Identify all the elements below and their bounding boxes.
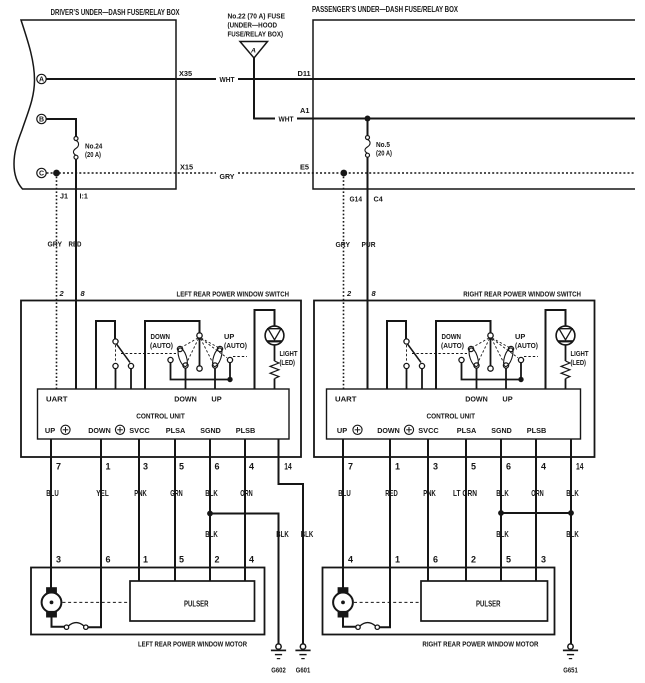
- svg-text:(20 A): (20 A): [85, 150, 101, 159]
- svg-text:WHT: WHT: [279, 114, 294, 123]
- svg-text:14: 14: [284, 462, 292, 472]
- svg-text:GRY: GRY: [48, 240, 63, 249]
- svg-text:UP: UP: [515, 332, 525, 341]
- svg-text:BLU: BLU: [46, 489, 59, 498]
- svg-text:WHT: WHT: [220, 75, 235, 84]
- svg-text:5: 5: [179, 462, 184, 472]
- svg-text:G651: G651: [563, 665, 578, 674]
- svg-text:7: 7: [348, 462, 353, 472]
- svg-text:CONTROL UNIT: CONTROL UNIT: [427, 412, 476, 421]
- svg-text:DOWN: DOWN: [465, 395, 488, 404]
- svg-text:2: 2: [59, 289, 65, 298]
- svg-text:GRN: GRN: [170, 489, 183, 498]
- svg-text:B: B: [39, 117, 44, 124]
- svg-text:E5: E5: [300, 163, 309, 172]
- svg-text:BLU: BLU: [338, 489, 351, 498]
- svg-text:PULSER: PULSER: [476, 598, 501, 608]
- svg-text:LEFT REAR POWER WINDOW MOTOR: LEFT REAR POWER WINDOW MOTOR: [138, 639, 248, 648]
- svg-text:5: 5: [506, 554, 511, 564]
- svg-text:RED: RED: [69, 240, 83, 249]
- svg-text:1: 1: [395, 554, 400, 564]
- svg-text:4: 4: [249, 462, 254, 472]
- svg-text:14: 14: [576, 462, 584, 472]
- svg-text:SVCC: SVCC: [129, 426, 150, 435]
- svg-text:UP: UP: [224, 332, 234, 341]
- svg-text:6: 6: [506, 462, 511, 472]
- svg-text:BLK: BLK: [566, 530, 579, 539]
- svg-text:UART: UART: [46, 395, 68, 404]
- svg-text:5: 5: [179, 554, 184, 564]
- svg-text:RIGHT REAR POWER WINDOW MOTOR: RIGHT REAR POWER WINDOW MOTOR: [422, 639, 539, 648]
- svg-text:1: 1: [395, 462, 400, 472]
- svg-text:PNK: PNK: [134, 489, 147, 498]
- svg-text:DOWN: DOWN: [174, 395, 197, 404]
- svg-text:PUR: PUR: [362, 240, 377, 249]
- svg-text:(AUTO): (AUTO): [441, 341, 464, 350]
- svg-text:SVCC: SVCC: [418, 426, 439, 435]
- svg-text:BLK: BLK: [496, 530, 509, 539]
- svg-text:4: 4: [249, 554, 254, 564]
- svg-text:7: 7: [56, 462, 61, 472]
- svg-text:2: 2: [215, 554, 220, 564]
- svg-text:BLK: BLK: [205, 530, 218, 539]
- svg-text:3: 3: [433, 462, 438, 472]
- svg-text:G601: G601: [296, 665, 311, 674]
- svg-text:BLK: BLK: [276, 530, 289, 539]
- svg-text:BLK: BLK: [205, 489, 218, 498]
- svg-text:DRIVER’S UNDER—DASH FUSE/RELAY: DRIVER’S UNDER—DASH FUSE/RELAY BOX: [51, 8, 180, 17]
- svg-text:5: 5: [471, 462, 476, 472]
- svg-text:4: 4: [348, 554, 353, 564]
- svg-text:BLK: BLK: [301, 530, 314, 539]
- svg-text:RED: RED: [385, 489, 398, 498]
- svg-text:RIGHT REAR POWER WINDOW SWITCH: RIGHT REAR POWER WINDOW SWITCH: [463, 290, 581, 299]
- svg-text:PASSENGER’S UNDER—DASH FUSE/RE: PASSENGER’S UNDER—DASH FUSE/RELAY BOX: [312, 5, 459, 14]
- svg-text:PLSA: PLSA: [457, 426, 477, 435]
- svg-text:SGND: SGND: [491, 426, 512, 435]
- svg-text:3: 3: [541, 554, 546, 564]
- svg-text:1: 1: [143, 554, 148, 564]
- svg-text:2: 2: [471, 554, 476, 564]
- svg-text:1: 1: [106, 462, 111, 472]
- svg-text:YEL: YEL: [96, 489, 109, 498]
- svg-text:4: 4: [541, 462, 546, 472]
- svg-text:SGND: SGND: [200, 426, 221, 435]
- svg-text:A: A: [250, 48, 256, 55]
- svg-text:(AUTO): (AUTO): [150, 341, 173, 350]
- svg-text:C4: C4: [374, 195, 383, 204]
- svg-text:GRY: GRY: [336, 240, 351, 249]
- svg-text:X15: X15: [180, 163, 193, 172]
- svg-text:UP: UP: [211, 395, 221, 404]
- svg-text:A1: A1: [300, 106, 309, 115]
- svg-text:(AUTO): (AUTO): [515, 341, 538, 350]
- svg-text:DOWN: DOWN: [151, 332, 171, 341]
- svg-text:ORN: ORN: [531, 489, 544, 498]
- svg-text:BLK: BLK: [496, 489, 509, 498]
- svg-text:UART: UART: [335, 395, 357, 404]
- svg-text:UP: UP: [45, 426, 55, 435]
- svg-text:(LED): (LED): [571, 358, 587, 367]
- svg-text:(UNDER—HOOD: (UNDER—HOOD: [228, 21, 278, 30]
- svg-text:PLSB: PLSB: [527, 426, 547, 435]
- svg-text:6: 6: [106, 554, 111, 564]
- svg-text:6: 6: [215, 462, 220, 472]
- svg-text:UP: UP: [502, 395, 512, 404]
- svg-text:ORN: ORN: [240, 489, 253, 498]
- svg-text:A: A: [39, 77, 44, 84]
- svg-text:PLSB: PLSB: [236, 426, 256, 435]
- svg-text:CONTROL UNIT: CONTROL UNIT: [136, 412, 185, 421]
- svg-text:C: C: [39, 171, 44, 178]
- svg-text:DOWN: DOWN: [377, 426, 400, 435]
- svg-text:I:1: I:1: [80, 192, 88, 201]
- svg-text:(AUTO): (AUTO): [224, 341, 247, 350]
- svg-text:No.22 (70 A) FUSE: No.22 (70 A) FUSE: [228, 12, 286, 21]
- svg-text:PNK: PNK: [423, 489, 436, 498]
- svg-text:J1: J1: [60, 192, 68, 201]
- svg-text:D11: D11: [298, 69, 311, 78]
- svg-text:6: 6: [433, 554, 438, 564]
- svg-text:LIGHT: LIGHT: [280, 349, 298, 358]
- svg-text:PULSER: PULSER: [184, 598, 209, 608]
- svg-text:3: 3: [56, 554, 61, 564]
- svg-text:DOWN: DOWN: [442, 332, 462, 341]
- svg-text:LT GRN: LT GRN: [453, 489, 477, 498]
- svg-text:FUSE/RELAY BOX): FUSE/RELAY BOX): [228, 30, 284, 39]
- svg-text:2: 2: [346, 289, 352, 298]
- svg-text:G602: G602: [271, 665, 286, 674]
- svg-text:LEFT REAR POWER WINDOW SWITCH: LEFT REAR POWER WINDOW SWITCH: [177, 290, 290, 299]
- svg-text:GRY: GRY: [220, 172, 235, 181]
- svg-text:LIGHT: LIGHT: [571, 349, 589, 358]
- svg-text:DOWN: DOWN: [88, 426, 111, 435]
- svg-text:X35: X35: [179, 69, 192, 78]
- svg-text:BLK: BLK: [566, 489, 579, 498]
- svg-text:(20 A): (20 A): [376, 149, 392, 158]
- svg-text:G14: G14: [350, 195, 363, 204]
- svg-text:(LED): (LED): [280, 358, 296, 367]
- svg-text:3: 3: [143, 462, 148, 472]
- svg-text:UP: UP: [337, 426, 347, 435]
- svg-text:PLSA: PLSA: [166, 426, 186, 435]
